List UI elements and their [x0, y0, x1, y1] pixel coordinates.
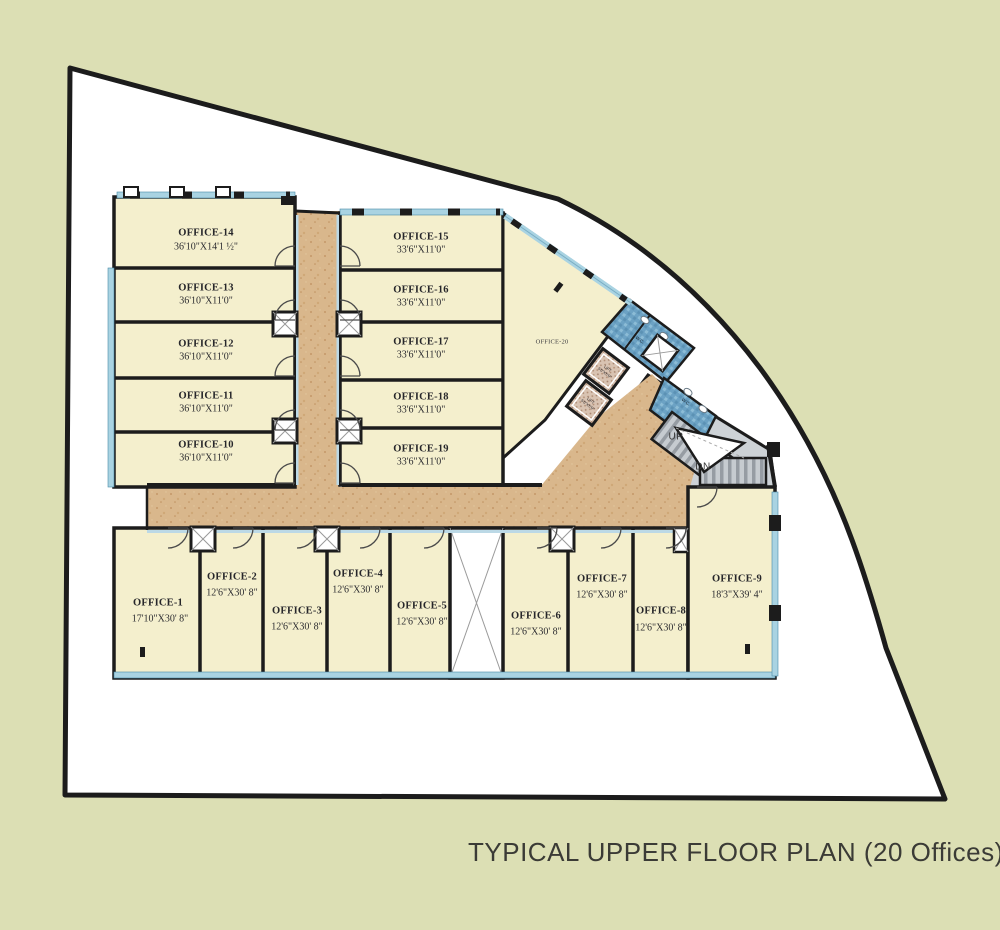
office-8-label: OFFICE-8 [636, 606, 686, 617]
office-9-label: OFFICE-9 [712, 574, 762, 585]
office-17-dims: 33'6"X11'0" [397, 350, 446, 361]
office-13-label: OFFICE-13 [178, 283, 233, 294]
office-16-label: OFFICE-16 [393, 285, 448, 296]
office-2-label: OFFICE-2 [207, 572, 257, 583]
corridor-vertical [295, 211, 340, 487]
drawing-title: TYPICAL UPPER FLOOR PLAN (20 Offices) [468, 837, 954, 868]
office-1-label: OFFICE-1 [133, 598, 183, 609]
stairs-dn-label: DN [695, 462, 710, 473]
office-5-dims: 12'6"X30' 8" [396, 617, 448, 628]
office-13-dims: 36'10"X11'0" [179, 296, 233, 307]
office-6-dims: 12'6"X30' 8" [510, 627, 562, 638]
office-19-label: OFFICE-19 [393, 444, 448, 455]
office-15-label: OFFICE-15 [393, 232, 448, 243]
office-15-dims: 33'6"X11'0" [397, 245, 446, 256]
office-6-label: OFFICE-6 [511, 611, 561, 622]
corridor-horizontal [147, 487, 688, 530]
office-9-dims: 18'3"X39' 4" [711, 590, 763, 601]
floor-plan-page: OFFICE-14 36'10"X14'1 ½" OFFICE-13 36'10… [0, 0, 1000, 930]
office-8-dims: 12'6"X30' 8" [635, 623, 687, 634]
office-3-dims: 12'6"X30' 8" [271, 622, 323, 633]
office-12-label: OFFICE-12 [178, 339, 233, 350]
office-16-dims: 33'6"X11'0" [397, 298, 446, 309]
office-20-label: OFFICE-20 [536, 339, 569, 346]
office-7-label: OFFICE-7 [577, 574, 627, 585]
office-7-dims: 12'6"X30' 8" [576, 590, 628, 601]
office-11-dims: 36'10"X11'0" [179, 404, 233, 415]
office-18-label: OFFICE-18 [393, 392, 448, 403]
office-4-dims: 12'6"X30' 8" [332, 585, 384, 596]
office-17-label: OFFICE-17 [393, 337, 448, 348]
office-19-dims: 33'6"X11'0" [397, 457, 446, 468]
floor-plan-drawing [0, 0, 1000, 930]
office-18-dims: 33'6"X11'0" [397, 405, 446, 416]
office-14-dims: 36'10"X14'1 ½" [174, 242, 238, 253]
office-11-label: OFFICE-11 [179, 391, 234, 402]
stairs-up-label: UP [669, 432, 684, 443]
office-2-dims: 12'6"X30' 8" [206, 588, 258, 599]
office-10-label: OFFICE-10 [178, 440, 233, 451]
office-5-label: OFFICE-5 [397, 601, 447, 612]
office-4-label: OFFICE-4 [333, 569, 383, 580]
office-14-label: OFFICE-14 [178, 228, 233, 239]
office-12-dims: 36'10"X11'0" [179, 352, 233, 363]
office-1-dims: 17'10"X30' 8" [132, 614, 189, 625]
office-3-label: OFFICE-3 [272, 606, 322, 617]
office-10-dims: 36'10"X11'0" [179, 453, 233, 464]
